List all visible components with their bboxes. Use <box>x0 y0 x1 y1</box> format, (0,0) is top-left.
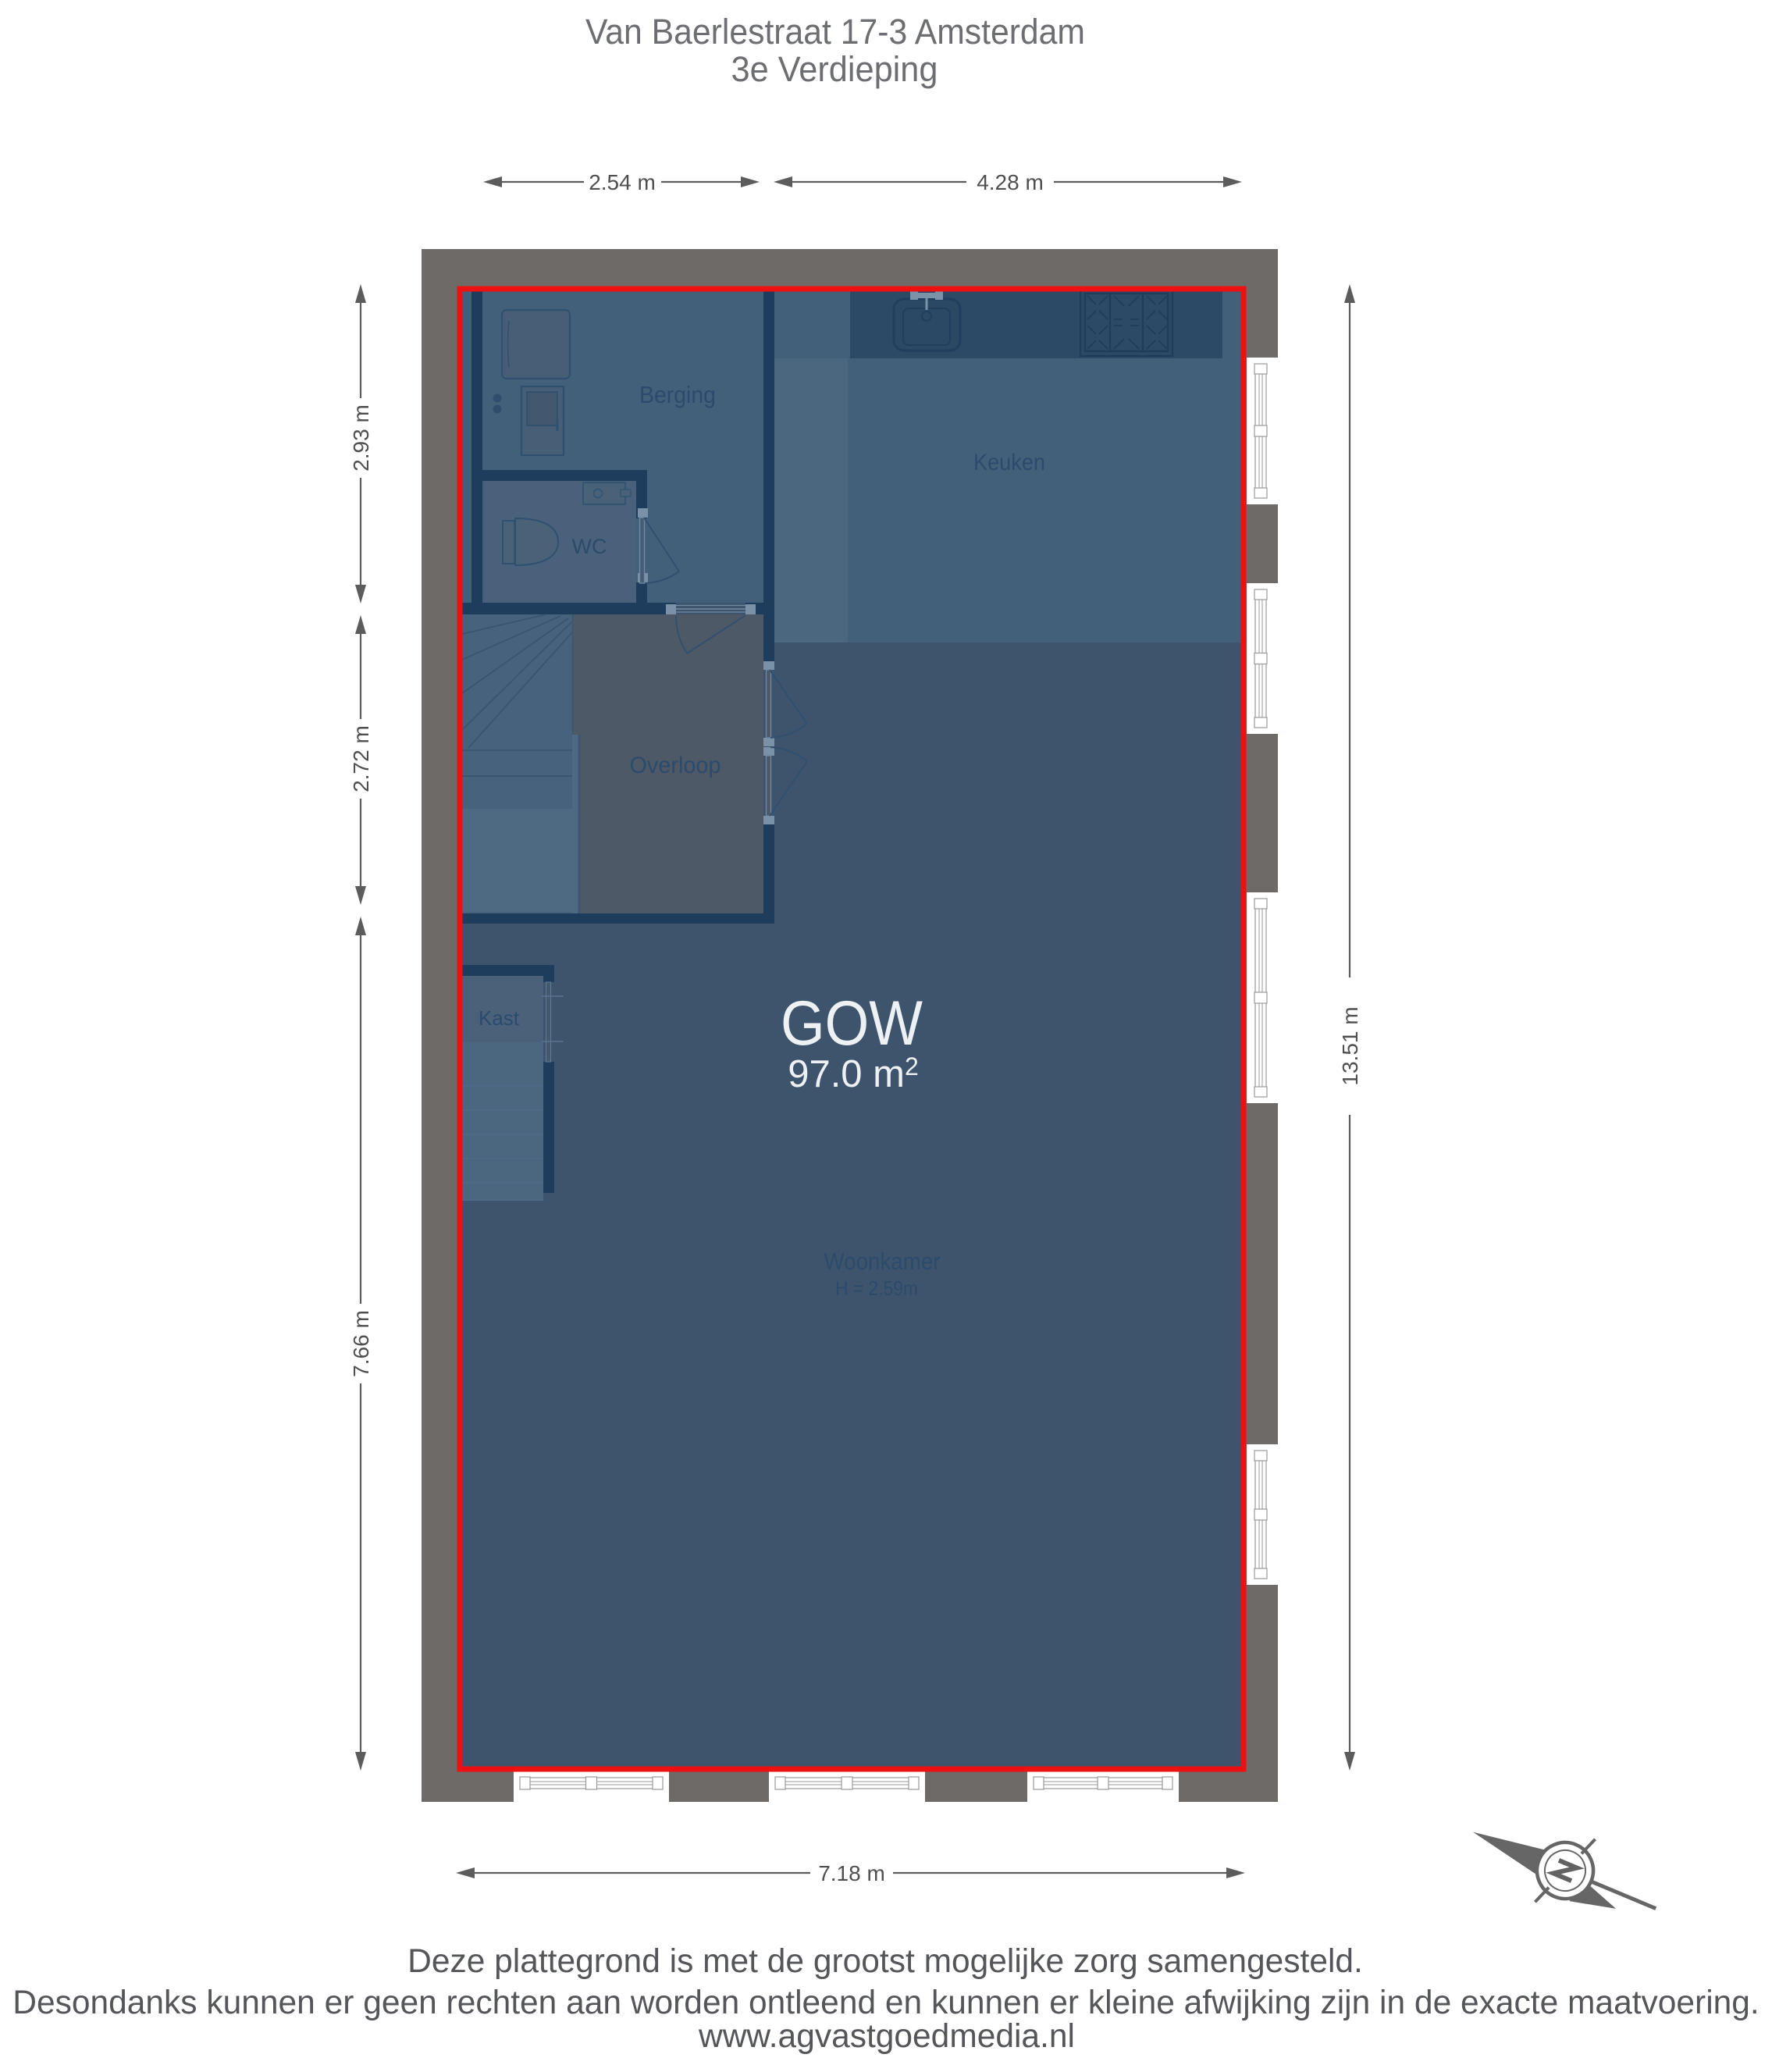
svg-text:GOW: GOW <box>781 988 923 1059</box>
svg-text:Deze plattegrond is met de gro: Deze plattegrond is met de grootst mogel… <box>407 1943 1363 1980</box>
svg-text:4.28 m: 4.28 m <box>977 170 1044 194</box>
svg-text:3e Verdieping: 3e Verdieping <box>731 49 938 89</box>
svg-text:Desondanks kunnen er geen rech: Desondanks kunnen er geen rechten aan wo… <box>12 1985 1759 2021</box>
svg-text:WC: WC <box>572 535 607 558</box>
svg-text:Van Baerlestraat 17-3 Amsterda: Van Baerlestraat 17-3 Amsterdam <box>585 12 1085 52</box>
svg-text:www.agvastgoedmedia.nl: www.agvastgoedmedia.nl <box>698 2018 1075 2055</box>
svg-text:Woonkamer: Woonkamer <box>824 1248 941 1275</box>
svg-text:97.0 m2: 97.0 m2 <box>788 1052 919 1095</box>
svg-text:2.54 m: 2.54 m <box>589 170 656 194</box>
svg-text:7.66 m: 7.66 m <box>349 1310 373 1377</box>
svg-text:H = 2.59m: H = 2.59m <box>835 1276 918 1300</box>
svg-text:Keuken: Keuken <box>973 450 1045 475</box>
svg-text:Overloop: Overloop <box>630 753 721 778</box>
svg-text:Kast: Kast <box>479 1006 520 1030</box>
svg-text:2.72 m: 2.72 m <box>349 725 373 792</box>
svg-text:7.18 m: 7.18 m <box>818 1861 885 1885</box>
svg-text:2.93 m: 2.93 m <box>349 404 373 472</box>
svg-text:13.51 m: 13.51 m <box>1338 1006 1362 1085</box>
svg-text:Berging: Berging <box>639 381 716 408</box>
